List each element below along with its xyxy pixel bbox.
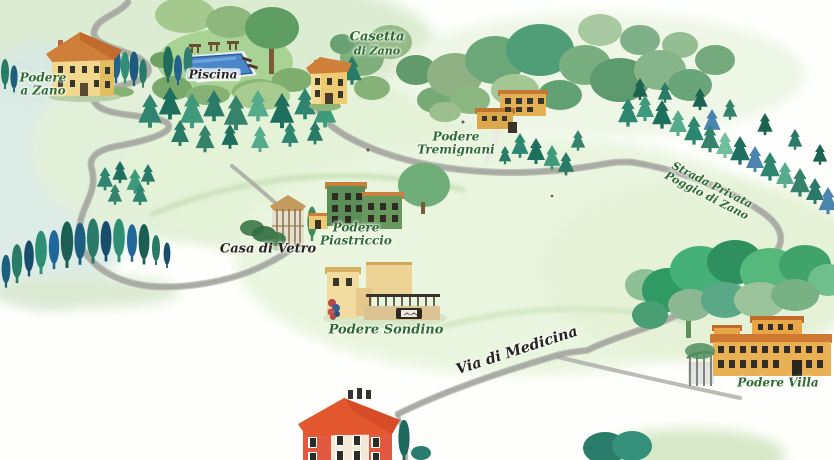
bushes-bottom-center [583,431,652,460]
label-piscina: Piscina [186,68,241,81]
house-casetta-di-zano [306,57,352,111]
label-podere-villa: Podere Villa [737,376,818,389]
red-house [298,388,431,460]
label-podere-a-zano: Podere a Zano [20,72,67,99]
pergola-villa [685,343,715,386]
label-podere-sondino: Podere Sondino [329,324,444,339]
label-casetta-di-zano: Casetta di Zano [350,31,405,58]
label-podere-tremignani: Podere Tremignani [417,131,494,158]
illustrated-estate-map: Podere a Zano Piscina Casetta di Zano Po… [0,0,834,460]
map-artwork [0,0,834,460]
label-casa-di-vetro: Casa di Vetro [220,243,316,258]
label-podere-piastriccio: Podere Piastriccio [320,222,392,249]
